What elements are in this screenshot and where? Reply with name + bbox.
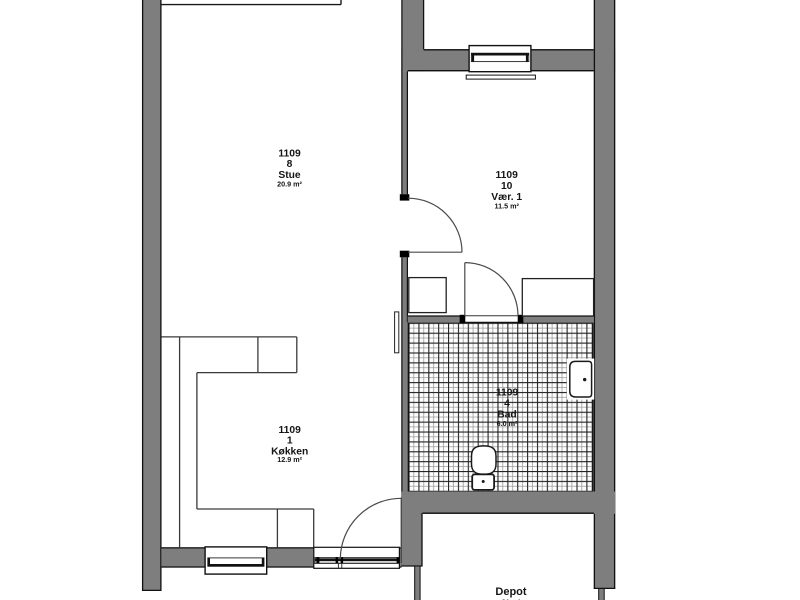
svg-text:6.0 m²: 6.0 m² bbox=[497, 419, 518, 428]
svg-text:10: 10 bbox=[501, 181, 513, 192]
svg-text:1109: 1109 bbox=[496, 388, 519, 399]
svg-text:20.9 m²: 20.9 m² bbox=[277, 180, 302, 189]
svg-text:1: 1 bbox=[287, 436, 293, 447]
svg-text:1109: 1109 bbox=[278, 149, 301, 160]
svg-text:1109: 1109 bbox=[279, 425, 302, 436]
svg-text:12.9 m²: 12.9 m² bbox=[277, 455, 302, 464]
svg-text:1109: 1109 bbox=[496, 170, 519, 181]
svg-text:8: 8 bbox=[287, 159, 293, 170]
svg-text:11.5 m²: 11.5 m² bbox=[495, 202, 520, 211]
svg-text:Depot: Depot bbox=[495, 586, 527, 598]
svg-text:4: 4 bbox=[504, 399, 510, 410]
